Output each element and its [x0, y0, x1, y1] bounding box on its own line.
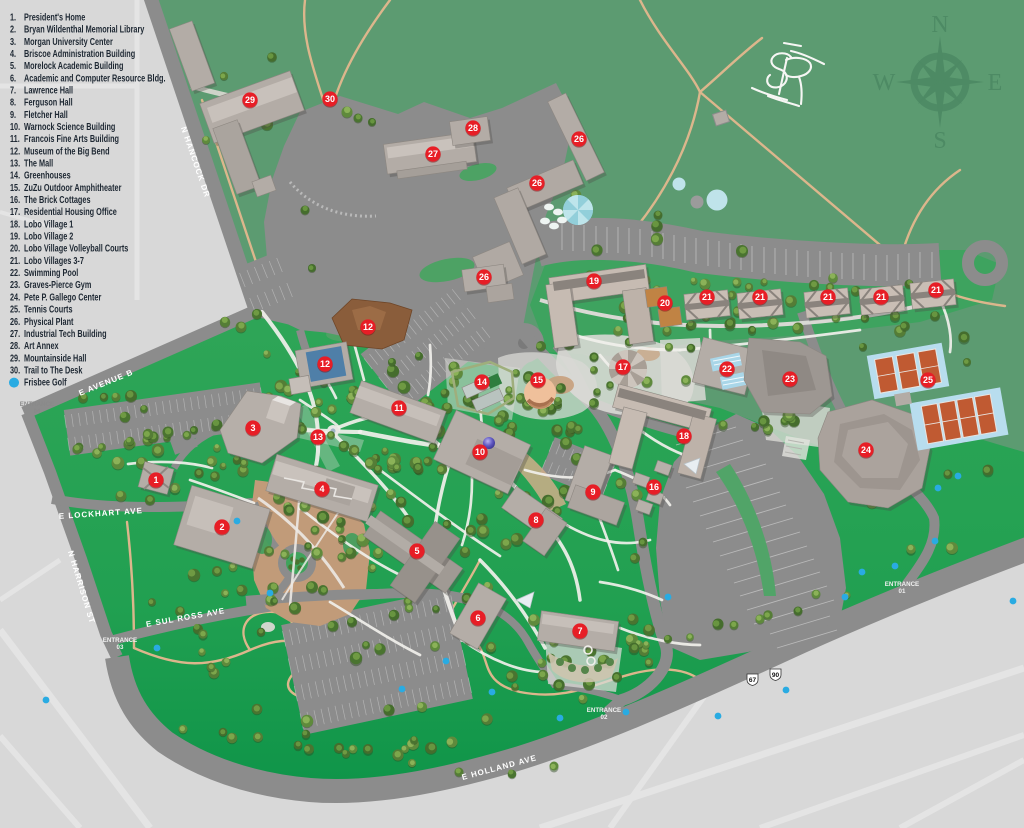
svg-text:27.: 27.: [10, 328, 20, 339]
svg-text:ENTRANCE: ENTRANCE: [20, 401, 54, 408]
svg-text:25: 25: [923, 375, 933, 385]
svg-text:23: 23: [785, 374, 795, 384]
svg-text:27: 27: [428, 149, 438, 159]
svg-text:Graves-Pierce Gym: Graves-Pierce Gym: [24, 279, 92, 290]
svg-text:Lobo Village 2: Lobo Village 2: [24, 230, 73, 241]
svg-text:Museum of the Big Bend: Museum of the Big Bend: [24, 145, 110, 156]
svg-text:5.: 5.: [10, 60, 16, 71]
svg-text:24: 24: [861, 445, 871, 455]
svg-text:1.: 1.: [10, 11, 16, 22]
svg-text:Lobo Villages 3-7: Lobo Villages 3-7: [24, 255, 84, 266]
svg-text:Industrial Tech Building: Industrial Tech Building: [24, 328, 107, 339]
svg-text:N: N: [931, 12, 948, 38]
svg-text:2: 2: [219, 522, 224, 532]
svg-text:17: 17: [618, 362, 628, 372]
svg-text:ENTRANCE: ENTRANCE: [587, 707, 621, 714]
svg-text:21: 21: [755, 292, 765, 302]
svg-text:Tennis Courts: Tennis Courts: [24, 303, 73, 314]
svg-text:21: 21: [823, 292, 833, 302]
svg-text:10: 10: [475, 447, 485, 457]
svg-text:90: 90: [772, 672, 780, 679]
svg-text:Lobo Village Volleyball Courts: Lobo Village Volleyball Courts: [24, 243, 128, 254]
svg-text:22.: 22.: [10, 267, 20, 278]
svg-text:19.: 19.: [10, 230, 20, 241]
svg-text:15.: 15.: [10, 182, 20, 193]
svg-text:3: 3: [250, 423, 255, 433]
svg-text:Greenhouses: Greenhouses: [24, 170, 71, 181]
svg-text:5: 5: [414, 546, 419, 556]
svg-text:Academic and Computer Resource: Academic and Computer Resource Bldg.: [24, 72, 166, 83]
svg-text:Pete P. Gallego Center: Pete P. Gallego Center: [24, 291, 102, 302]
svg-text:6.: 6.: [10, 72, 16, 83]
svg-text:67: 67: [749, 677, 757, 684]
svg-text:21: 21: [876, 292, 886, 302]
svg-text:15: 15: [533, 375, 543, 385]
svg-text:12: 12: [320, 359, 330, 369]
svg-text:ENTRANCE: ENTRANCE: [103, 637, 137, 644]
svg-text:8.: 8.: [10, 97, 16, 108]
svg-text:Morelock Academic Building: Morelock Academic Building: [24, 60, 123, 71]
svg-text:26: 26: [532, 178, 542, 188]
svg-text:22: 22: [722, 364, 732, 374]
svg-text:Ferguson Hall: Ferguson Hall: [24, 97, 73, 108]
svg-text:11.: 11.: [10, 133, 20, 144]
svg-text:Residential Housing Office: Residential Housing Office: [24, 206, 117, 217]
svg-text:26: 26: [479, 272, 489, 282]
svg-text:12.: 12.: [10, 145, 20, 156]
svg-text:E: E: [988, 70, 1003, 96]
svg-text:28: 28: [468, 123, 478, 133]
svg-text:25.: 25.: [10, 303, 20, 314]
svg-text:Lobo Village 1: Lobo Village 1: [24, 218, 73, 229]
svg-text:03: 03: [117, 644, 124, 651]
svg-text:10.: 10.: [10, 121, 20, 132]
svg-text:18: 18: [679, 431, 689, 441]
svg-text:Swimming Pool: Swimming Pool: [24, 267, 78, 278]
svg-text:W: W: [873, 70, 896, 96]
svg-text:3.: 3.: [10, 36, 16, 47]
svg-text:7.: 7.: [10, 84, 16, 95]
svg-text:4.: 4.: [10, 48, 16, 59]
svg-text:The Mall: The Mall: [24, 157, 53, 168]
svg-text:18.: 18.: [10, 218, 20, 229]
svg-text:13: 13: [313, 432, 323, 442]
svg-text:24.: 24.: [10, 291, 20, 302]
svg-text:23.: 23.: [10, 279, 20, 290]
svg-text:29.: 29.: [10, 352, 20, 363]
svg-text:Morgan University Center: Morgan University Center: [24, 36, 113, 47]
svg-text:21.: 21.: [10, 255, 20, 266]
svg-text:Physical Plant: Physical Plant: [24, 316, 74, 327]
svg-text:21: 21: [931, 285, 941, 295]
svg-text:7: 7: [577, 626, 582, 636]
svg-text:21: 21: [702, 292, 712, 302]
svg-text:S: S: [933, 128, 946, 154]
svg-text:9.: 9.: [10, 109, 16, 120]
svg-text:04: 04: [34, 408, 41, 415]
svg-text:Lawrence Hall: Lawrence Hall: [24, 84, 73, 95]
svg-text:01: 01: [899, 588, 906, 595]
svg-text:ENTRANCE: ENTRANCE: [885, 581, 919, 588]
svg-text:1: 1: [153, 475, 158, 485]
svg-text:Francois Fine Arts Building: Francois Fine Arts Building: [24, 133, 119, 144]
svg-text:Trail to The Desk: Trail to The Desk: [24, 364, 82, 375]
svg-text:16.: 16.: [10, 194, 20, 205]
svg-text:02: 02: [601, 714, 608, 721]
svg-text:26: 26: [574, 134, 584, 144]
svg-text:Art Annex: Art Annex: [24, 340, 59, 351]
svg-text:16: 16: [649, 482, 659, 492]
svg-text:Frisbee Golf: Frisbee Golf: [24, 376, 67, 387]
svg-text:17.: 17.: [10, 206, 20, 217]
svg-text:11: 11: [394, 403, 404, 413]
svg-text:30: 30: [325, 94, 335, 104]
svg-text:2.: 2.: [10, 24, 16, 35]
svg-text:Briscoe Administration Buildin: Briscoe Administration Building: [24, 48, 135, 59]
svg-text:29: 29: [245, 95, 255, 105]
svg-text:20: 20: [660, 298, 670, 308]
svg-text:19: 19: [589, 276, 599, 286]
svg-text:Fletcher Hall: Fletcher Hall: [24, 109, 68, 120]
svg-text:28.: 28.: [10, 340, 20, 351]
svg-text:13.: 13.: [10, 157, 20, 168]
svg-text:ZuZu Outdoor Amphitheater: ZuZu Outdoor Amphitheater: [24, 182, 122, 193]
svg-text:Bryan Wildenthal Memorial Libr: Bryan Wildenthal Memorial Library: [24, 24, 144, 35]
svg-text:14.: 14.: [10, 170, 20, 181]
svg-text:The Brick Cottages: The Brick Cottages: [24, 194, 91, 205]
svg-text:4: 4: [319, 484, 324, 494]
svg-text:Mountainside Hall: Mountainside Hall: [24, 352, 86, 363]
svg-text:26.: 26.: [10, 316, 20, 327]
svg-text:6: 6: [475, 613, 480, 623]
svg-text:12: 12: [363, 322, 373, 332]
svg-text:8: 8: [533, 515, 538, 525]
svg-text:20.: 20.: [10, 243, 20, 254]
svg-text:President's Home: President's Home: [24, 11, 85, 22]
svg-text:Warnock Science Building: Warnock Science Building: [24, 121, 115, 132]
svg-text:30.: 30.: [10, 364, 20, 375]
svg-text:9: 9: [590, 487, 595, 497]
svg-text:14: 14: [477, 377, 487, 387]
